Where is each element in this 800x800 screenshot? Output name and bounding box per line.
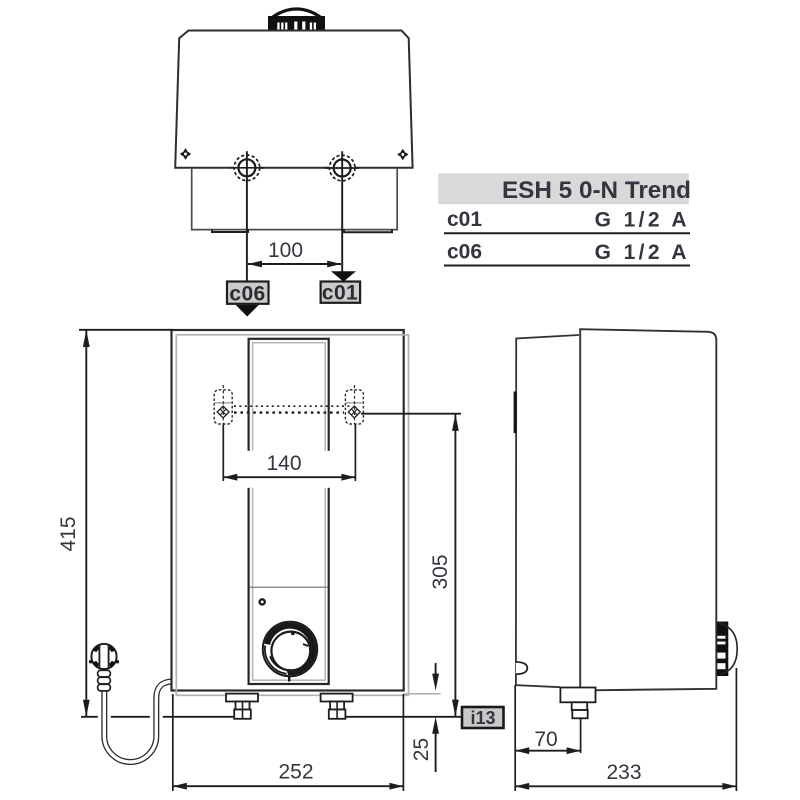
svg-text:100: 100: [268, 239, 303, 262]
svg-text:c06: c06: [229, 283, 265, 306]
svg-text:233: 233: [606, 761, 641, 784]
svg-text:G 1/2 A: G 1/2 A: [595, 209, 690, 232]
svg-text:c01: c01: [322, 282, 358, 305]
svg-text:252: 252: [278, 761, 313, 784]
svg-text:ESH 5 0-N Trend: ESH 5 0-N Trend: [502, 177, 691, 204]
svg-text:140: 140: [266, 452, 301, 475]
svg-text:70: 70: [534, 728, 557, 751]
svg-text:G 1/2 A: G 1/2 A: [595, 241, 690, 264]
svg-text:c06: c06: [447, 241, 482, 264]
svg-text:415: 415: [57, 516, 80, 551]
svg-text:305: 305: [429, 554, 452, 589]
svg-text:c01: c01: [447, 208, 482, 231]
svg-text:25: 25: [410, 738, 433, 761]
svg-text:i13: i13: [470, 708, 495, 728]
